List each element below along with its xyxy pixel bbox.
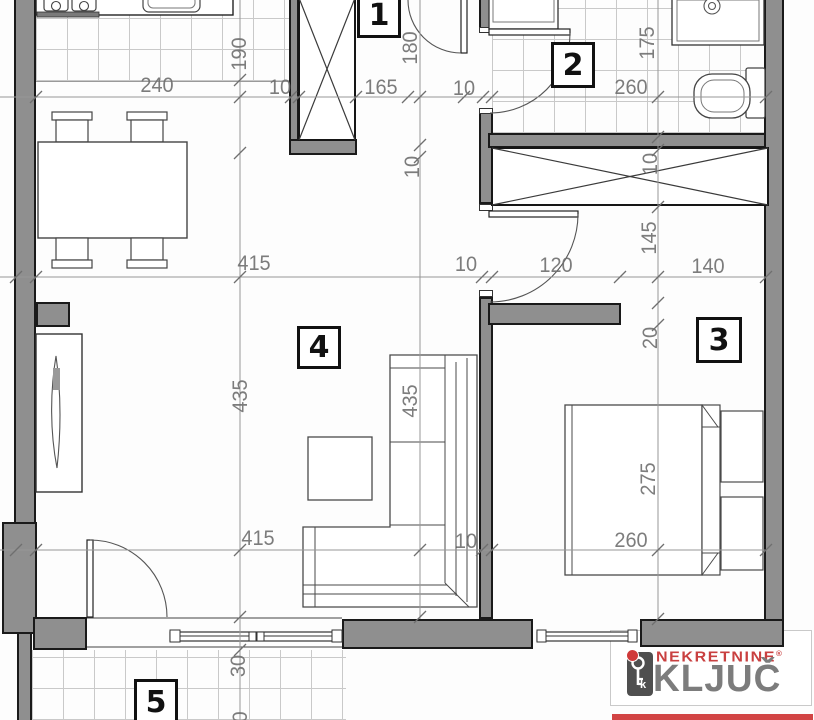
room-number-5: 5 [134,679,178,720]
dimension-label: 10 [455,253,477,277]
dimension-label: 140 [691,255,724,279]
dimension-label: 20 [639,327,663,349]
dimension-label: 260 [614,529,647,553]
room-number-4: 4 [297,326,341,369]
dimension-label: 145 [638,221,662,254]
room-number-1: 1 [357,0,401,38]
room-number-3: 3 [696,317,742,363]
dimension-label: 435 [229,379,253,412]
dimension-label: 180 [399,31,423,64]
dimension-label: 260 [614,76,647,100]
dimension-label: 275 [637,462,661,495]
kljuc-text: KLJUČ [653,658,781,701]
plan-linework [0,0,814,720]
dimension-label: 10 [453,77,475,101]
dimension-label: 240 [140,74,173,98]
dimension-label: 10 [639,153,663,175]
dimension-label: 175 [636,26,660,59]
dimension-label: 10 [269,76,291,100]
dimension-label: 120 [539,254,572,278]
dimension-label: 415 [237,252,270,276]
dimension-label: 415 [241,527,274,551]
room-number-2: 2 [551,42,595,88]
brand-badge [626,649,639,662]
red-accent-bar [612,714,813,720]
dimension-label: 435 [399,384,423,417]
floor-plan: 240 10 165 10 260 415 10 120 140 415 10 … [0,0,814,720]
dimension-label: 10 [455,530,477,554]
key-icon-letter: k [640,679,646,691]
dimension-label: 190 [228,37,252,70]
dimension-label: 0 [229,711,253,720]
dimension-label: 165 [364,76,397,100]
dimension-label: 10 [401,156,425,178]
dimension-label: 30 [227,655,251,677]
